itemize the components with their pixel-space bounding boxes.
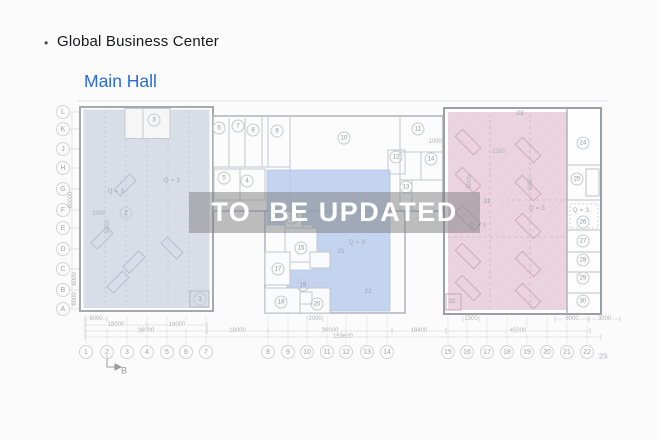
floorplan-viewer: • Global Business Center Main Hall <box>0 0 660 440</box>
section-marker <box>107 355 121 370</box>
watermark-banner: TO BE UPDATED <box>189 192 480 233</box>
